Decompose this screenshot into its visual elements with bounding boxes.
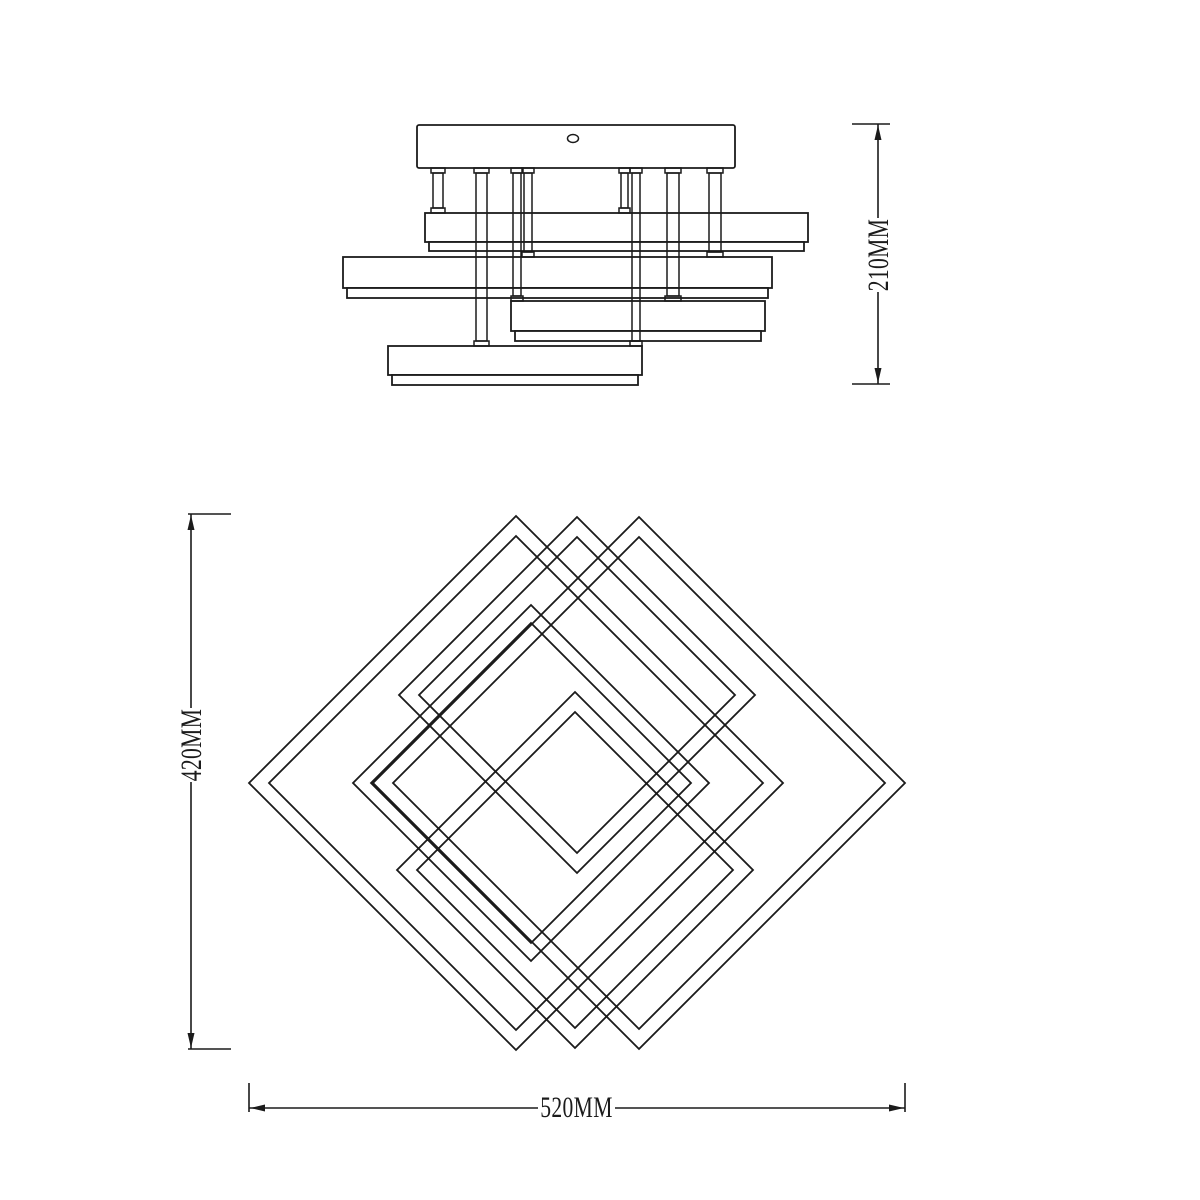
light-bar-4 (388, 346, 642, 385)
drawing-svg: 210MM 420MM 520MM (0, 0, 1200, 1200)
arrow-left-icon (250, 1105, 265, 1112)
dimension-plan-height: 420MM (174, 514, 231, 1049)
support-rod (431, 168, 445, 213)
light-bar-1-diffuser-lip (429, 242, 804, 251)
arrow-up-icon (188, 515, 195, 530)
arrow-right-icon (889, 1105, 904, 1112)
light-bar-4-diffuser-lip (392, 375, 638, 385)
arrow-down-icon (188, 1033, 195, 1048)
diamond-frame-large-right (373, 517, 905, 1049)
technical-drawing-page: 210MM 420MM 520MM (0, 0, 1200, 1200)
dimension-fixture-height: 210MM (852, 124, 895, 384)
ceiling-canopy (417, 125, 735, 168)
dimension-label-420mm: 420MM (174, 709, 207, 782)
light-bar-3-diffuser-lip (515, 331, 761, 341)
arrow-down-icon (875, 368, 882, 383)
light-bar-3 (511, 301, 765, 341)
support-rod (619, 168, 630, 213)
plan-view (249, 516, 905, 1050)
dimension-label-210mm: 210MM (861, 219, 894, 292)
elevation-view (343, 125, 808, 385)
dimension-plan-width: 520MM (249, 1083, 905, 1124)
arrow-up-icon (875, 125, 882, 140)
dimension-label-520mm: 520MM (540, 1090, 613, 1123)
light-bar-2 (343, 257, 772, 298)
light-bar-2-diffuser-lip (347, 288, 768, 298)
diamond-frame-medium-left (353, 605, 709, 961)
light-bar-1 (425, 213, 808, 251)
